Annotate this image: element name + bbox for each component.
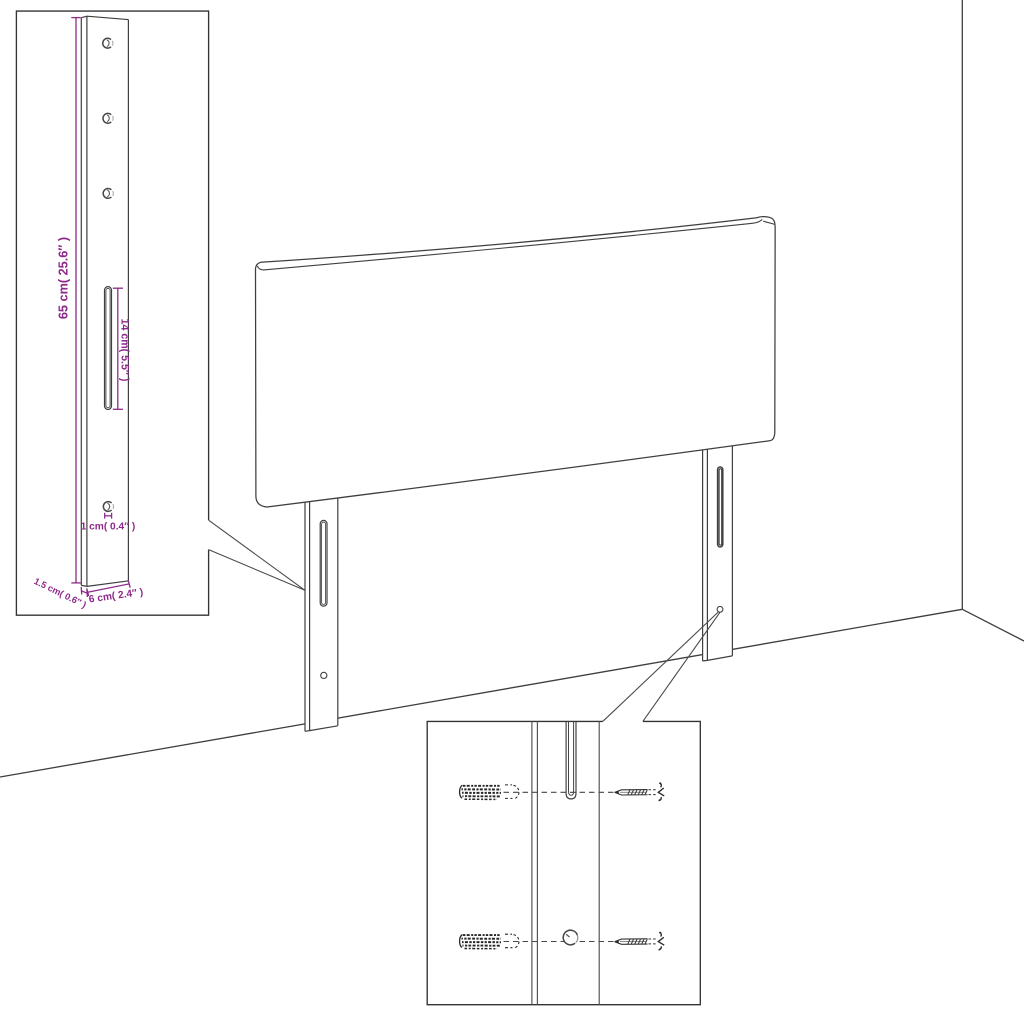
svg-text:1 cm( 0.4″ ): 1 cm( 0.4″ ) — [81, 522, 136, 533]
svg-text:14 cm( 5.5″ ): 14 cm( 5.5″ ) — [118, 319, 130, 382]
svg-text:65 cm( 25.6″ ): 65 cm( 25.6″ ) — [57, 237, 71, 319]
